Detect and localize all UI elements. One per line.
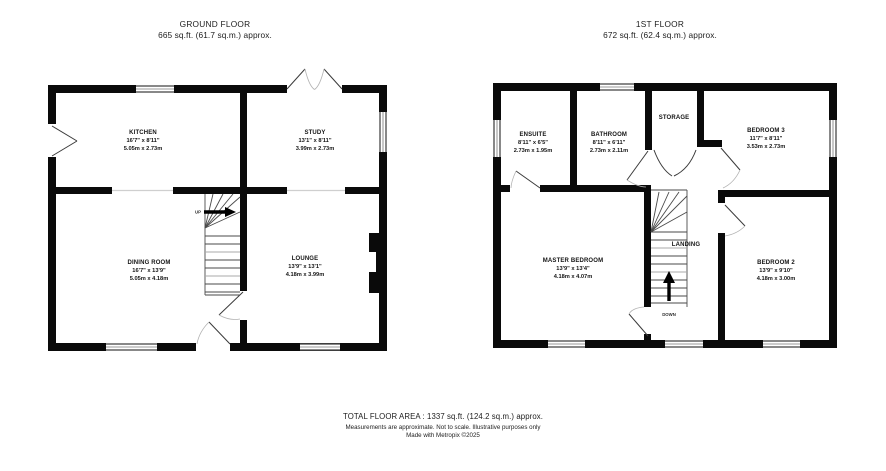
room-name: ENSUITE (519, 132, 546, 138)
room-name: KITCHEN (129, 130, 157, 136)
room-dims-ft: 13'1" x 8'11" (298, 138, 331, 144)
floorplan-page: GROUND FLOOR 665 sq.ft. (61.7 sq.m.) app… (0, 0, 886, 471)
room-dims-ft: 13'9" x 13'1" (288, 264, 322, 270)
bedroom2-door-swing (725, 205, 745, 236)
first-doors (511, 148, 745, 336)
ensuite-window (493, 120, 500, 157)
room-dims-m: 3.99m x 2.73m (296, 146, 335, 152)
bathroom-door-swing (627, 151, 648, 187)
total-floor-area: TOTAL FLOOR AREA : 1337 sq.ft. (124.2 sq… (243, 412, 643, 421)
first-staircase: DOWN (651, 190, 687, 317)
storage-door-swing (654, 150, 696, 176)
lounge-door-swing (219, 292, 243, 320)
room-dims-ft: 11'7" x 8'11" (750, 136, 783, 142)
first-floor-plan: DOWN ENSUITE 8'11" x 6'5" 2.73m x 1.95m … (493, 83, 837, 348)
room-label-lounge: LOUNGE 13'9" x 13'1" 4.18m x 3.99m (286, 256, 325, 278)
room-dims-m: 4.18m x 3.00m (757, 276, 796, 282)
room-name: LOUNGE (292, 256, 319, 262)
room-name: LANDING (672, 242, 701, 248)
bathroom-top-window (600, 83, 634, 90)
lounge-window (300, 343, 340, 350)
study-window (379, 112, 386, 152)
bedroom3-door-swing (721, 148, 740, 188)
room-dims-m: 5.05m x 4.18m (130, 276, 169, 282)
room-dims-m: 4.18m x 4.07m (554, 274, 593, 280)
stairs-down-label: DOWN (662, 312, 676, 317)
room-dims-m: 2.73m x 1.95m (514, 148, 553, 154)
ground-staircase: UP (195, 194, 240, 295)
room-dims-ft: 16'7" x 13'9" (132, 268, 166, 274)
room-dims-ft: 16'7" x 8'11" (126, 138, 159, 144)
bedroom2-window (763, 340, 800, 347)
ground-doors (52, 69, 342, 344)
room-label-bathroom: BATHROOM 8'11" x 6'11" 2.73m x 2.11m (590, 132, 628, 154)
room-label-study: STUDY 13'1" x 8'11" 3.99m x 2.73m (296, 130, 335, 152)
dining-window (106, 343, 157, 350)
room-dims-m: 2.73m x 2.11m (590, 148, 628, 154)
stairs-up-label: UP (195, 210, 201, 215)
down-arrow (663, 271, 675, 301)
bedroom3-window (829, 120, 836, 157)
first-windows (493, 83, 836, 347)
room-label-storage: STORAGE (659, 115, 690, 121)
room-name: STORAGE (659, 115, 690, 121)
room-dims-ft: 13'9" x 9'10" (759, 268, 793, 274)
room-name: DINING ROOM (128, 260, 171, 266)
side-door-swing (52, 126, 77, 156)
room-dims-ft: 8'11" x 6'11" (593, 140, 626, 146)
back-door-swing (197, 322, 230, 344)
room-label-kitchen: KITCHEN 16'7" x 8'11" 5.05m x 2.73m (124, 130, 163, 152)
room-name: BATHROOM (591, 132, 627, 138)
room-dims-m: 4.18m x 3.99m (286, 272, 325, 278)
room-dims-ft: 8'11" x 6'5" (518, 140, 548, 146)
disclaimer-text: Measurements are approximate. Not to sca… (243, 424, 643, 432)
landing-window (665, 340, 703, 347)
up-arrow (204, 207, 236, 217)
ground-interior-walls (56, 93, 379, 343)
room-name: BEDROOM 2 (757, 260, 795, 266)
room-name: STUDY (304, 130, 325, 136)
footer-block: TOTAL FLOOR AREA : 1337 sq.ft. (124.2 sq… (243, 412, 643, 439)
room-dims-m: 3.53m x 2.73m (747, 144, 786, 150)
room-label-master-bedroom: MASTER BEDROOM 13'9" x 13'4" 4.18m x 4.0… (543, 258, 603, 280)
first-exterior-walls (493, 83, 837, 348)
master-bedroom-door-swing (629, 307, 648, 336)
ground-exterior-walls (48, 85, 387, 351)
room-label-ensuite: ENSUITE 8'11" x 6'5" 2.73m x 1.95m (514, 132, 553, 154)
room-name: BEDROOM 3 (747, 128, 785, 134)
credit-text: Made with Metropix ©2025 (243, 432, 643, 440)
kitchen-window (136, 85, 174, 92)
ground-floor-plan: UP KITCHEN 16'7" x 8'11" 5.05m x 2.73m S… (48, 69, 387, 351)
room-dims-m: 5.05m x 2.73m (124, 146, 163, 152)
fireplace-chimney-breast (369, 233, 387, 293)
master-bedroom-window (548, 340, 585, 347)
ensuite-door-swing (511, 171, 540, 188)
room-name: MASTER BEDROOM (543, 258, 603, 264)
room-label-landing: LANDING (672, 242, 701, 248)
room-dims-ft: 13'9" x 13'4" (556, 266, 590, 272)
room-label-bedroom3: BEDROOM 3 11'7" x 8'11" 3.53m x 2.73m (747, 128, 786, 150)
room-label-bedroom2: BEDROOM 2 13'9" x 9'10" 4.18m x 3.00m (757, 260, 796, 282)
front-door-swing (287, 69, 342, 90)
floorplan-canvas: UP KITCHEN 16'7" x 8'11" 5.05m x 2.73m S… (0, 0, 886, 471)
room-label-dining-room: DINING ROOM 16'7" x 13'9" 5.05m x 4.18m (128, 260, 171, 282)
